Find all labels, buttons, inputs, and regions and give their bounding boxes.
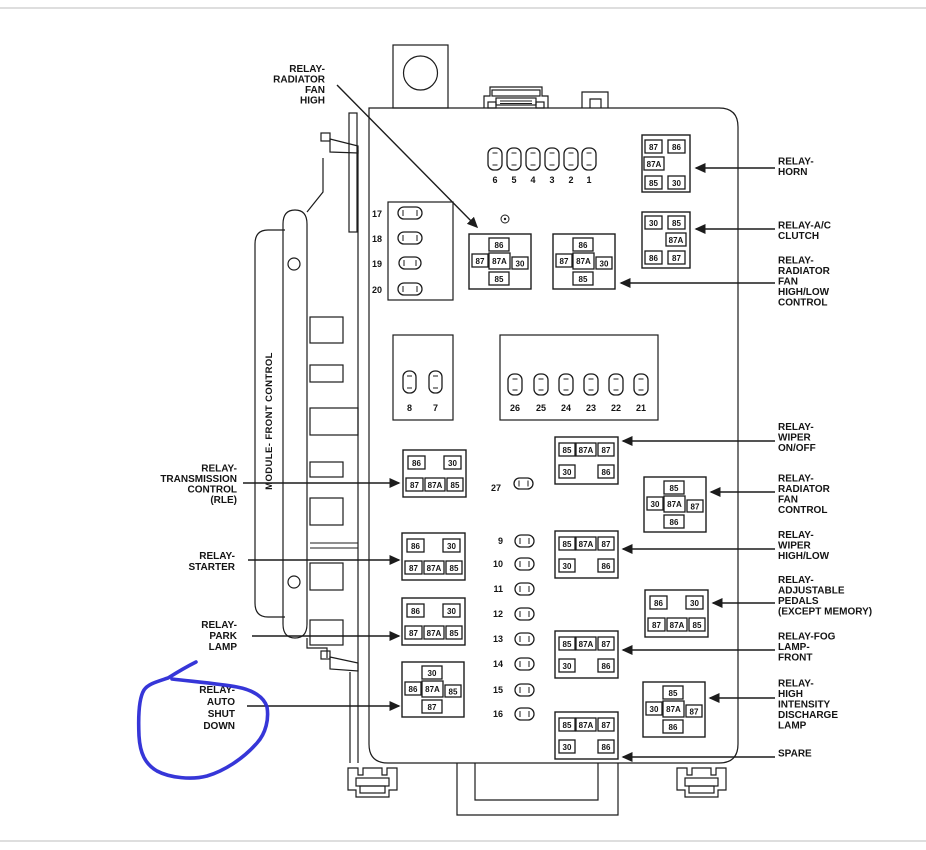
svg-text:LAMP: LAMP [209, 642, 238, 653]
fuse-number: 2 [568, 175, 573, 185]
relay-starter: 86 30 87 87A 85 [402, 533, 465, 580]
label-relay-starter: RELAY- STARTER [189, 551, 236, 573]
svg-text:RELAY-: RELAY- [778, 256, 814, 267]
svg-text:(RLE): (RLE) [210, 495, 237, 506]
relay-horn: 87 86 87A 85 30 [642, 135, 690, 192]
svg-text:HIGH: HIGH [778, 689, 803, 700]
pin-label: 87 [690, 708, 699, 717]
pin-label: 87A [579, 721, 594, 730]
fuse-number: 13 [493, 634, 503, 644]
label-spare: SPARE [778, 749, 812, 760]
connector-rib [310, 563, 343, 590]
pin-label: 85 [693, 621, 702, 630]
relay-fog-lamp-front: 85 87A 87 30 86 [555, 631, 618, 678]
pin-label: 86 [412, 459, 421, 468]
pin-label: 87A [670, 621, 685, 630]
pin-label: 87 [602, 721, 611, 730]
fuse-number: 23 [586, 403, 596, 413]
fuse-slot [582, 148, 596, 170]
svg-text:RELAY-: RELAY- [778, 157, 814, 168]
fuse-number: 10 [493, 559, 503, 569]
svg-text:CONTROL: CONTROL [778, 505, 827, 516]
fuse-slot [515, 708, 534, 720]
svg-text:SPARE: SPARE [778, 749, 812, 760]
fuse-number: 8 [407, 403, 412, 413]
fuse-slot [515, 633, 534, 645]
pin-label: 85 [563, 446, 572, 455]
fuse-number: 21 [636, 403, 646, 413]
label-relay-horn: RELAY- HORN [778, 157, 814, 179]
svg-text:LAMP-: LAMP- [778, 642, 810, 653]
fuse-number: 9 [498, 536, 503, 546]
pin-label: 85 [495, 275, 504, 284]
pin-label: 87 [409, 629, 418, 638]
fuse-slot [507, 148, 521, 170]
top-small-tab [582, 92, 608, 108]
pin-label: 87 [560, 257, 569, 266]
svg-text:FRONT: FRONT [778, 653, 812, 664]
latch-clip-top [330, 139, 358, 153]
fuse-slot [488, 148, 502, 170]
pin-label: 86 [411, 607, 420, 616]
fuse-number: 22 [611, 403, 621, 413]
module-front-control-label: MODULE- FRONT CONTROL [264, 352, 275, 490]
svg-text:AUTO: AUTO [207, 697, 235, 708]
pin-label: 85 [563, 540, 572, 549]
top-latch-connector [484, 87, 548, 108]
pin-label: 87A [492, 257, 507, 266]
pin-label: 85 [450, 629, 459, 638]
fuse-number: 25 [536, 403, 546, 413]
fuse-number: 5 [511, 175, 516, 185]
pin-label: 85 [672, 219, 681, 228]
pin-label: 86 [602, 662, 611, 671]
relay-radiator-fan-control: 85 30 87A 87 86 [644, 477, 706, 532]
fuse-slot [399, 257, 421, 269]
top-mount-tab [393, 45, 448, 108]
fuse-slot [398, 232, 422, 244]
pin-label: 85 [670, 484, 679, 493]
pin-label: 87 [691, 503, 700, 512]
connector-rib [310, 462, 343, 477]
fuse-number: 26 [510, 403, 520, 413]
fuse-number: 7 [433, 403, 438, 413]
pin-label: 30 [563, 468, 572, 477]
bottom-center-connector [457, 763, 618, 815]
fuse-slot [403, 371, 416, 393]
fuse-block-17-20: 17 18 19 20 [372, 202, 453, 300]
pin-label: 85 [451, 481, 460, 490]
pin-label: 87 [428, 703, 437, 712]
svg-text:(EXCEPT MEMORY): (EXCEPT MEMORY) [778, 607, 872, 618]
svg-text:RADIATOR: RADIATOR [778, 266, 831, 277]
svg-text:HORN: HORN [778, 167, 807, 178]
svg-text:TRANSMISSION: TRANSMISSION [160, 474, 237, 485]
pin-label: 86 [602, 562, 611, 571]
fuse-slot [515, 684, 534, 696]
pin-label: 87A [669, 236, 684, 245]
pin-label: 30 [447, 607, 456, 616]
fuse-slot [515, 583, 534, 595]
label-relay-auto-shut-down: RELAY- AUTO SHUT DOWN [199, 685, 235, 732]
fuse-number: 27 [491, 483, 501, 493]
svg-text:RELAY-: RELAY- [778, 530, 814, 541]
pin-label: 87 [602, 640, 611, 649]
svg-text:FAN: FAN [305, 85, 325, 96]
fuse-slot [609, 374, 623, 395]
connector-rib [310, 498, 343, 525]
pin-label: 86 [602, 743, 611, 752]
connector-hole [288, 576, 300, 588]
svg-text:RELAY-: RELAY- [778, 474, 814, 485]
fuse-number: 16 [493, 709, 503, 719]
svg-text:RADIATOR: RADIATOR [273, 75, 326, 86]
svg-text:INTENSITY: INTENSITY [778, 700, 831, 711]
label-relay-transmission-control: RELAY- TRANSMISSION CONTROL (RLE) [160, 464, 237, 507]
fuse-slot [515, 535, 534, 547]
svg-text:RELAY-: RELAY- [778, 575, 814, 586]
pin-label: 87A [666, 705, 681, 714]
fuse-box-diagram: MODULE- FRONT CONTROL 6 5 4 3 2 1 17 18 … [0, 0, 926, 850]
pin-label: 86 [579, 241, 588, 250]
svg-text:PEDALS: PEDALS [778, 596, 819, 607]
svg-text:RELAY-: RELAY- [201, 620, 237, 631]
fuse-slot [514, 478, 533, 489]
fuse-row-top: 6 5 4 3 2 1 [488, 148, 596, 185]
label-relay-radiator-fan-high: RELAY- RADIATOR FAN HIGH [273, 64, 326, 107]
connector-rib [310, 317, 343, 343]
label-relay-fog-lamp-front: RELAY-FOG LAMP- FRONT [778, 632, 836, 664]
relay-park-lamp: 86 30 87 87A 85 [402, 598, 465, 645]
fuse-slot [429, 371, 442, 393]
pin-label: 87A [427, 564, 442, 573]
bottom-mount-tab-left [348, 768, 397, 797]
pin-label: 87 [672, 254, 681, 263]
relay-adjustable-pedals: 86 30 87 87A 85 [645, 590, 708, 637]
pin-label: 85 [649, 179, 658, 188]
svg-text:LAMP: LAMP [778, 721, 807, 732]
pin-label: 30 [563, 743, 572, 752]
fuse-number: 18 [372, 234, 382, 244]
pin-label: 30 [448, 459, 457, 468]
pin-label: 87A [579, 640, 594, 649]
fuse-slot [508, 374, 522, 395]
pin-label: 86 [670, 518, 679, 527]
svg-text:RELAY-: RELAY- [778, 422, 814, 433]
bottom-mount-tab-right [677, 768, 726, 797]
fuse-slot [634, 374, 648, 395]
pin-label: 30 [649, 219, 658, 228]
fuse-number: 12 [493, 609, 503, 619]
pin-label: 30 [563, 662, 572, 671]
svg-text:WIPER: WIPER [778, 433, 812, 444]
svg-text:RELAY-A/C: RELAY-A/C [778, 221, 831, 232]
svg-text:CONTROL: CONTROL [188, 485, 237, 496]
svg-text:RADIATOR: RADIATOR [778, 484, 831, 495]
pin-label: 30 [428, 669, 437, 678]
svg-text:RELAY-: RELAY- [289, 64, 325, 75]
relay-ac-clutch: 30 85 87A 86 87 [642, 212, 690, 268]
svg-text:RELAY-: RELAY- [199, 551, 235, 562]
svg-text:STARTER: STARTER [189, 562, 236, 573]
latch-clip-bottom [330, 657, 358, 671]
fuse-slot [584, 374, 598, 395]
pin-label: 87 [602, 446, 611, 455]
fuse-slot [515, 658, 534, 670]
pin-label: 86 [649, 254, 658, 263]
fuse-slot [515, 608, 534, 620]
relay-auto-shut-down: 30 86 87A 85 87 [402, 662, 464, 717]
pin-label: 30 [447, 542, 456, 551]
pin-label: 85 [450, 564, 459, 573]
pin-label: 85 [563, 721, 572, 730]
svg-text:WIPER: WIPER [778, 541, 812, 552]
svg-text:HIGH/LOW: HIGH/LOW [778, 287, 830, 298]
label-relay-park-lamp: RELAY- PARK LAMP [201, 620, 238, 653]
fuse-slot [564, 148, 578, 170]
fuse-slot [515, 558, 534, 570]
pin-label: 30 [563, 562, 572, 571]
fuse-slot [534, 374, 548, 395]
relay-wiper-on-off: 85 87A 87 30 86 [555, 437, 618, 484]
pin-label: 30 [516, 260, 525, 269]
fuse-number: 15 [493, 685, 503, 695]
svg-text:FAN: FAN [778, 495, 798, 506]
svg-text:CONTROL: CONTROL [778, 298, 827, 309]
label-relay-wiper-on-off: RELAY- WIPER ON/OFF [778, 422, 816, 454]
fuse-number: 20 [372, 285, 382, 295]
pin-label: 85 [579, 275, 588, 284]
pin-label: 87A [579, 446, 594, 455]
pin-label: 30 [672, 179, 681, 188]
fuse-number: 24 [561, 403, 571, 413]
pin-label: 87A [427, 629, 442, 638]
pin-label: 87 [649, 143, 658, 152]
pin-label: 30 [690, 599, 699, 608]
connector-hole [288, 258, 300, 270]
pin-label: 85 [563, 640, 572, 649]
fuse-number: 17 [372, 209, 382, 219]
small-symbol-icon [501, 215, 509, 223]
pin-label: 86 [654, 599, 663, 608]
svg-text:RELAY-FOG: RELAY-FOG [778, 632, 836, 643]
relay-spare: 85 87A 87 30 86 [555, 712, 618, 759]
svg-text:ADJUSTABLE: ADJUSTABLE [778, 586, 845, 597]
fuse-slot [398, 207, 422, 219]
fuse-27: 27 [491, 478, 533, 493]
pin-label: 86 [411, 542, 420, 551]
fuse-slot [398, 283, 422, 295]
pin-label: 87 [410, 481, 419, 490]
label-relay-adjustable-pedals: RELAY- ADJUSTABLE PEDALS (EXCEPT MEMORY) [778, 575, 872, 618]
svg-text:ON/OFF: ON/OFF [778, 443, 816, 454]
label-relay-ac-clutch: RELAY-A/C CLUTCH [778, 221, 831, 243]
svg-text:CLUTCH: CLUTCH [778, 231, 819, 242]
pin-label: 85 [669, 689, 678, 698]
relay-radiator-fan-high: 86 87 87A 30 85 [469, 234, 531, 289]
pin-label: 87 [476, 257, 485, 266]
svg-text:HIGH/LOW: HIGH/LOW [778, 551, 830, 562]
pin-label: 86 [495, 241, 504, 250]
pin-label: 86 [669, 723, 678, 732]
svg-text:RELAY-: RELAY- [778, 679, 814, 690]
svg-text:PARK: PARK [209, 631, 237, 642]
label-relay-radiator-fan-high-low-control: RELAY- RADIATOR FAN HIGH/LOW CONTROL [778, 256, 831, 309]
pin-label: 86 [409, 685, 418, 694]
label-relay-radiator-fan-control: RELAY- RADIATOR FAN CONTROL [778, 474, 831, 517]
front-control-module-connector: MODULE- FRONT CONTROL [255, 113, 358, 763]
pin-label: 87A [425, 685, 440, 694]
pin-label: 30 [600, 260, 609, 269]
pin-label: 87A [576, 257, 591, 266]
fuse-number: 4 [530, 175, 535, 185]
fuse-number: 11 [493, 584, 503, 594]
relay-wiper-high-low: 85 87A 87 30 86 [555, 531, 618, 578]
svg-text:HIGH: HIGH [300, 96, 325, 107]
svg-text:RELAY-: RELAY- [201, 464, 237, 475]
pin-label: 85 [449, 688, 458, 697]
fusebox-outline [369, 108, 738, 763]
svg-text:DOWN: DOWN [203, 721, 235, 732]
pin-label: 30 [651, 500, 660, 509]
connector-rib [310, 620, 343, 645]
connector-rib [310, 365, 343, 382]
fuse-pair-8-7: 8 7 [393, 335, 453, 420]
fuse-number: 14 [493, 659, 503, 669]
fuse-slot [559, 374, 573, 395]
pin-label: 87A [428, 481, 443, 490]
svg-text:DISCHARGE: DISCHARGE [778, 710, 838, 721]
relay-high-intensity-discharge-lamp: 85 30 87A 87 86 [643, 682, 705, 737]
pin-label: 30 [650, 705, 659, 714]
svg-text:FAN: FAN [778, 277, 798, 288]
label-relay-wiper-high-low: RELAY- WIPER HIGH/LOW [778, 530, 830, 562]
fuse-number: 3 [549, 175, 554, 185]
pin-label: 87A [579, 540, 594, 549]
fuse-number: 1 [586, 175, 591, 185]
fuse-slot [526, 148, 540, 170]
svg-text:SHUT: SHUT [208, 709, 235, 720]
pin-label: 87A [667, 500, 682, 509]
relay-radiator-fan-high-low-control: 86 87 87A 30 85 [553, 234, 615, 289]
relay-transmission-control: 86 30 87 87A 85 [403, 450, 466, 497]
mount-hole [404, 56, 438, 90]
fuse-row-26-21: 26 25 24 23 22 21 [500, 335, 658, 420]
fuse-slot [545, 148, 559, 170]
fuse-number: 19 [372, 259, 382, 269]
label-relay-hid-lamp: RELAY- HIGH INTENSITY DISCHARGE LAMP [778, 679, 838, 732]
pin-label: 86 [672, 143, 681, 152]
fuse-number: 6 [492, 175, 497, 185]
pin-label: 86 [602, 468, 611, 477]
pin-label: 87A [647, 160, 662, 169]
pin-label: 87 [652, 621, 661, 630]
fuse-column-9-16: 9 10 11 12 13 14 15 16 [493, 535, 534, 720]
pin-label: 87 [409, 564, 418, 573]
pin-label: 87 [602, 540, 611, 549]
